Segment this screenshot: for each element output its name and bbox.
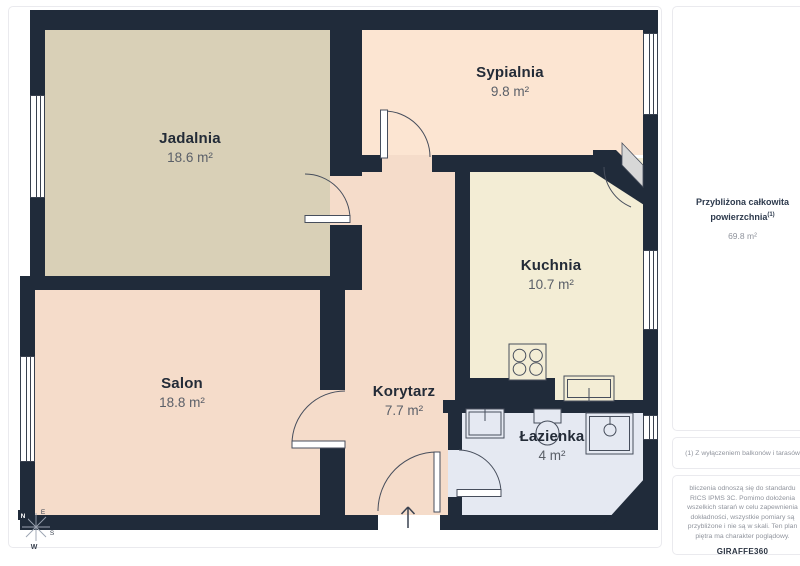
brand-logo: GIRAFFE360 <box>682 547 800 557</box>
total-area-footnote-marker: (1) <box>767 212 774 218</box>
stove-icon <box>509 344 546 380</box>
footnote-text: (1) Z wyłączeniem balkonów i tarasów <box>685 450 800 457</box>
sypialnia-floor <box>362 28 643 155</box>
total-area-label-text: Przybliżona całkowita powierzchnia <box>696 197 789 222</box>
wall-korytarz-kuchnia <box>455 155 470 403</box>
toilet-icon <box>534 409 561 445</box>
window-lazienka <box>644 416 658 440</box>
jadalnia-floor <box>45 28 330 276</box>
sink-icon <box>564 376 614 402</box>
disclaimer-text: bliczenia odnoszą się do standardu RICS … <box>682 484 800 542</box>
compass-w-label: W <box>31 544 38 551</box>
window-salon <box>21 357 35 462</box>
washing-machine-icon <box>466 409 504 438</box>
wall-bottom-left <box>20 515 378 530</box>
brand-name: GIRAFFE <box>717 547 754 556</box>
window-jadalnia <box>31 96 45 198</box>
compass-e-label: E <box>41 509 46 516</box>
total-area-value: 69.8 m² <box>728 231 757 241</box>
wall-jadalnia-salon <box>20 276 330 290</box>
doorway-sypialnia <box>382 155 432 172</box>
window-sypialnia <box>644 34 658 115</box>
floorplan-page: N E S W Jadalnia 18.6 m² Sypialnia 9.8 m… <box>0 0 800 566</box>
compass-s-label: S <box>50 530 55 537</box>
salon-floor <box>35 290 320 515</box>
total-area-label: Przybliżona całkowita powierzchnia(1) <box>686 196 799 224</box>
wall-jadalnia-korytarz <box>330 10 362 290</box>
wall-korytarz-lazienka-upper <box>448 403 462 450</box>
total-area-card: Przybliżona całkowita powierzchnia(1) 69… <box>672 6 800 431</box>
wall-kuchnia-bottom-left <box>455 378 555 403</box>
kuchnia-floor <box>470 158 643 400</box>
compass-n-label: N <box>21 513 26 520</box>
footnote-card: (1) Z wyłączeniem balkonów i tarasów <box>672 437 800 469</box>
window-kuchnia <box>644 251 658 330</box>
shower-icon <box>586 413 633 454</box>
disclaimer-card: bliczenia odnoszą się do standardu RICS … <box>672 475 800 555</box>
doorway-salon <box>320 390 345 447</box>
brand-number: 360 <box>754 547 768 556</box>
